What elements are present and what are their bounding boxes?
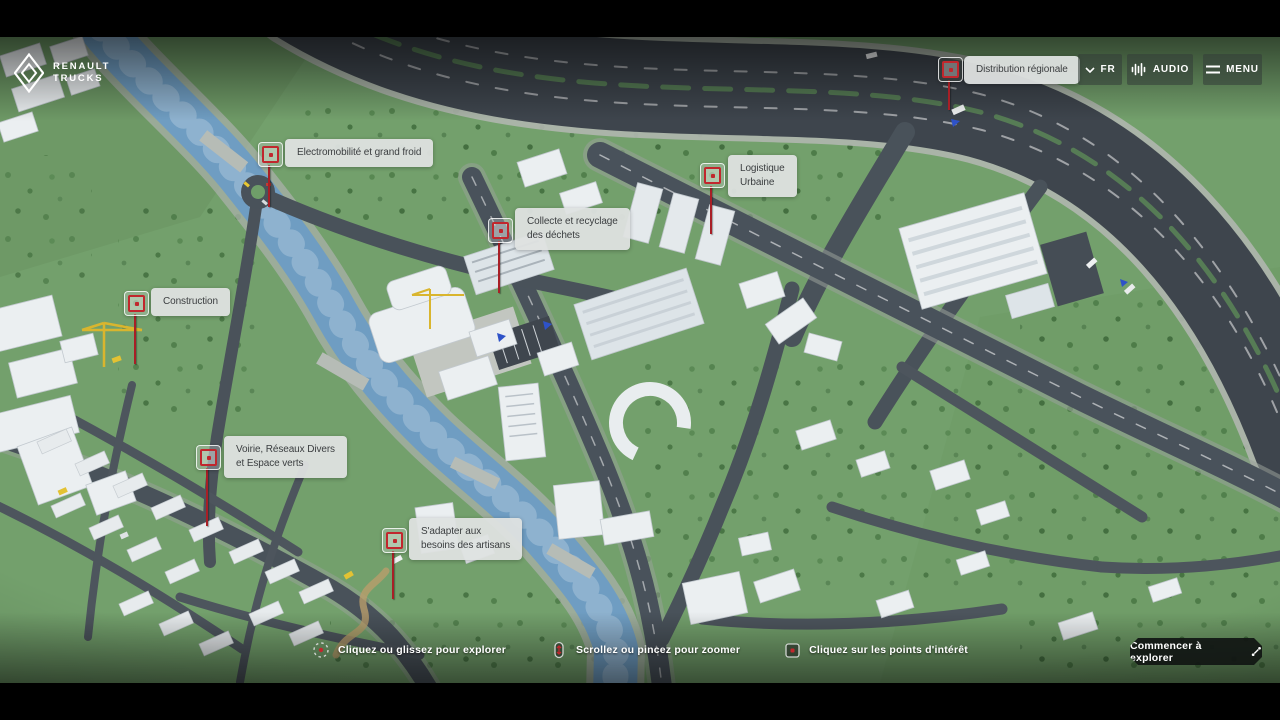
poi-label[interactable]: Construction [151, 288, 230, 316]
drag-explore-icon [312, 641, 330, 659]
menu-label: MENU [1226, 64, 1259, 75]
scroll-zoom-icon [550, 641, 568, 659]
brand-logo: RENAULT TRUCKS [14, 53, 110, 93]
poi-marker[interactable] [938, 57, 963, 82]
poi-label-line: Distribution régionale [976, 63, 1068, 77]
poi-label[interactable]: Logistique Urbaine [728, 155, 797, 197]
poi-marker[interactable] [488, 218, 513, 243]
poi-label-line: Logistique [740, 162, 785, 176]
diagonal-arrow-icon [1251, 646, 1262, 657]
poi-label-line: besoins des artisans [421, 539, 510, 553]
poi-marker[interactable] [124, 291, 149, 316]
poi-label[interactable]: Distribution régionale [964, 56, 1080, 84]
app-window: RENAULT TRUCKS FR AUDIO MEN [0, 0, 1280, 720]
audio-wave-icon [1131, 63, 1147, 76]
poi-click-icon [784, 642, 801, 659]
poi-stem [206, 468, 208, 526]
letterbox-bottom [0, 683, 1280, 720]
chevron-down-icon [1085, 67, 1095, 73]
hamburger-icon [1206, 65, 1220, 74]
hint-text: Scrollez ou pincez pour zoomer [576, 644, 740, 656]
poi-label-line: Collecte et recyclage [527, 215, 618, 229]
hint-drag-explore: Cliquez ou glissez pour explorer [312, 641, 506, 659]
city-map-3d[interactable] [0, 37, 1280, 683]
poi-label-line: Urbaine [740, 176, 785, 190]
poi-label-line: Construction [163, 295, 218, 309]
poi-stem [268, 165, 270, 207]
poi-stem [498, 241, 500, 293]
poi-marker[interactable] [700, 163, 725, 188]
poi-label-line: Electromobilité et grand froid [297, 146, 421, 160]
poi-label[interactable]: Collecte et recyclage des déchets [515, 208, 630, 250]
poi-stem [948, 80, 950, 110]
scene-viewport [0, 37, 1280, 683]
poi-marker[interactable] [196, 445, 221, 470]
language-label: FR [1101, 64, 1116, 75]
hint-text: Cliquez ou glissez pour explorer [338, 644, 506, 656]
poi-label-line: et Espace verts [236, 457, 335, 471]
audio-button[interactable]: AUDIO [1127, 54, 1193, 85]
poi-marker[interactable] [258, 142, 283, 167]
menu-button[interactable]: MENU [1203, 54, 1262, 85]
start-explore-button[interactable]: Commencer à explorer [1130, 638, 1262, 665]
language-button[interactable]: FR [1078, 54, 1122, 85]
brand-line1: RENAULT [53, 61, 110, 73]
audio-label: AUDIO [1153, 64, 1189, 75]
poi-stem [134, 314, 136, 364]
poi-label-line: des déchets [527, 229, 618, 243]
poi-label-line: Voirie, Réseaux Divers [236, 443, 335, 457]
hint-text: Cliquez sur les points d'intérêt [809, 644, 968, 656]
poi-label[interactable]: Electromobilité et grand froid [285, 139, 433, 167]
brand-line2: TRUCKS [53, 73, 110, 85]
poi-stem [710, 186, 712, 234]
poi-label[interactable]: Voirie, Réseaux Divers et Espace verts [224, 436, 347, 478]
hint-scroll-zoom: Scrollez ou pincez pour zoomer [550, 641, 740, 659]
start-explore-label: Commencer à explorer [1130, 640, 1244, 664]
renault-diamond-icon [14, 53, 44, 93]
poi-label[interactable]: S'adapter aux besoins des artisans [409, 518, 522, 560]
letterbox-top [0, 0, 1280, 37]
poi-marker[interactable] [382, 528, 407, 553]
poi-label-line: S'adapter aux [421, 525, 510, 539]
hints-bar: Cliquez ou glissez pour explorer Scrolle… [0, 641, 1280, 659]
poi-stem [392, 551, 394, 599]
hint-click-poi: Cliquez sur les points d'intérêt [784, 642, 968, 659]
